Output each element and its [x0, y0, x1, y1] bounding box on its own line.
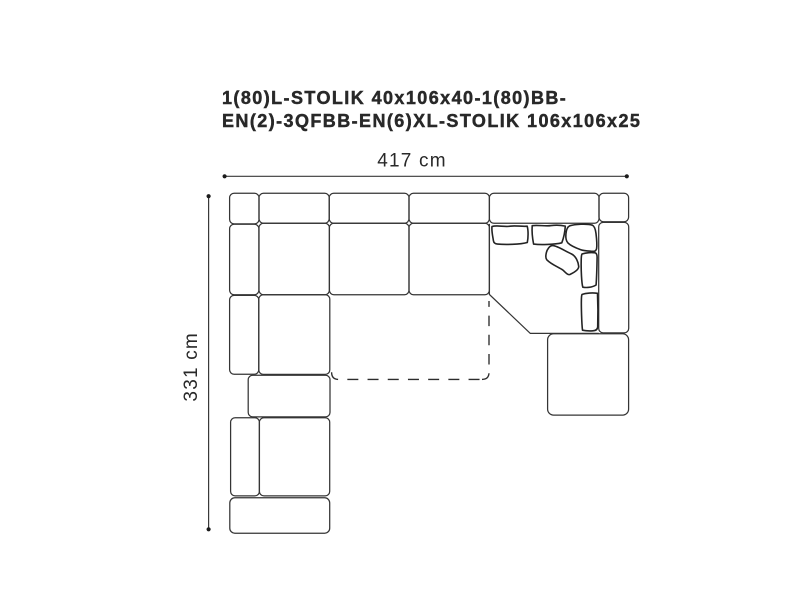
svg-text:417 cm: 417 cm: [377, 151, 447, 172]
svg-text:331 cm: 331 cm: [181, 332, 202, 402]
